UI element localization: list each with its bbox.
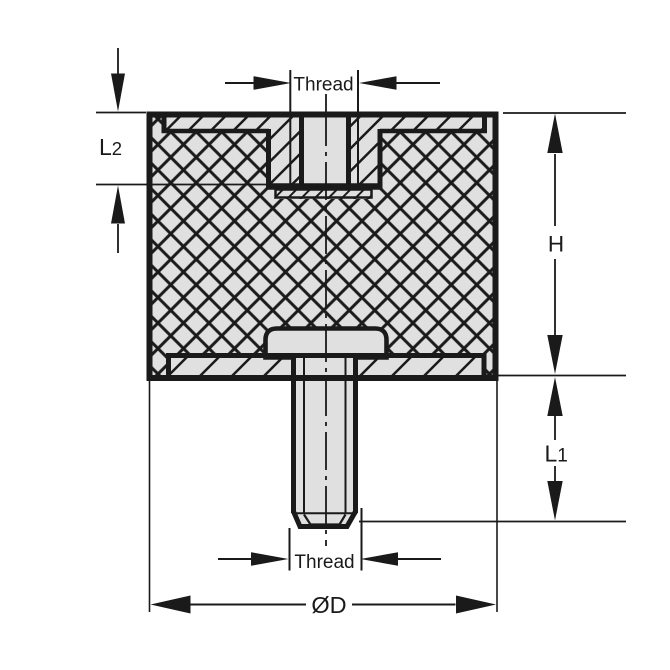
svg-text:Thread: Thread bbox=[293, 75, 353, 96]
svg-text:H: H bbox=[548, 232, 564, 257]
svg-text:L2: L2 bbox=[99, 134, 122, 160]
svg-text:ØD: ØD bbox=[311, 592, 346, 618]
svg-text:Thread: Thread bbox=[294, 552, 354, 573]
